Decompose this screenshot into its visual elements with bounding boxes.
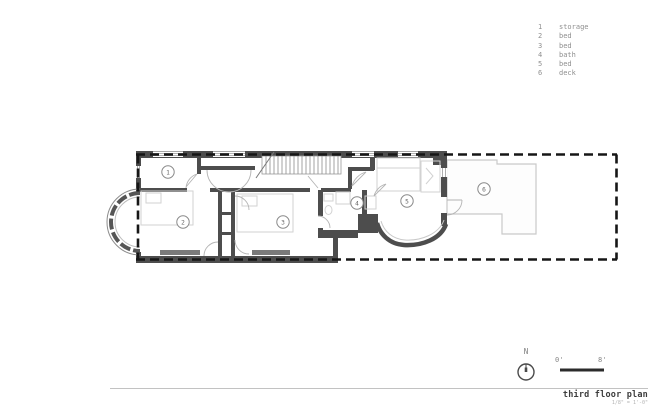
- legend-label: deck: [559, 69, 576, 78]
- legend-item: 6 deck: [538, 69, 589, 78]
- drawing-title: third floor plan: [563, 390, 648, 400]
- legend-label: bed: [559, 42, 572, 51]
- legend-label: bed: [559, 60, 572, 69]
- room-marker-1: 1: [162, 166, 174, 178]
- north-arrow-icon: [518, 364, 534, 380]
- legend-item: 3 bed: [538, 42, 589, 51]
- scale-zero-label: 0': [555, 356, 563, 364]
- legend-number: 4: [538, 51, 559, 60]
- legend-item: 5 bed: [538, 60, 589, 69]
- room-marker-label: 6: [482, 186, 486, 193]
- room-marker-label: 3: [281, 219, 285, 226]
- legend-label: bath: [559, 51, 576, 60]
- legend-number: 3: [538, 42, 559, 51]
- window-sills: [160, 250, 290, 255]
- curved-bay-window: [377, 220, 446, 245]
- bay-window: [107, 189, 140, 255]
- scale-eight-label: 8': [598, 356, 606, 364]
- drawing-sheet: 1 2 3 4 5 6: [0, 0, 650, 406]
- legend-item: 4 bath: [538, 51, 589, 60]
- room-marker-3: 3: [277, 216, 289, 228]
- deck-outline: [447, 160, 536, 234]
- legend-item: 1 storage: [538, 23, 589, 32]
- legend-number: 6: [538, 69, 559, 78]
- room-marker-4: 4: [351, 197, 363, 209]
- room-marker-label: 5: [405, 198, 409, 205]
- north-label: N: [519, 347, 533, 356]
- legend-number: 1: [538, 23, 559, 32]
- room-legend: 1 storage 2 bed 3 bed 4 bath 5 bed 6 dec…: [538, 23, 589, 79]
- legend-label: storage: [559, 23, 589, 32]
- room-marker-label: 1: [166, 169, 170, 176]
- room-marker-label: 4: [355, 200, 359, 207]
- legend-number: 5: [538, 60, 559, 69]
- legend-number: 2: [538, 32, 559, 41]
- legend-item: 2 bed: [538, 32, 589, 41]
- drawing-scale-note: 1/8" = 1'-0": [612, 400, 648, 406]
- room-marker-5: 5: [401, 195, 413, 207]
- legend-label: bed: [559, 32, 572, 41]
- room-marker-2: 2: [177, 216, 189, 228]
- room-marker-label: 2: [181, 219, 185, 226]
- staircase: [256, 152, 341, 178]
- room-marker-6: 6: [478, 183, 490, 195]
